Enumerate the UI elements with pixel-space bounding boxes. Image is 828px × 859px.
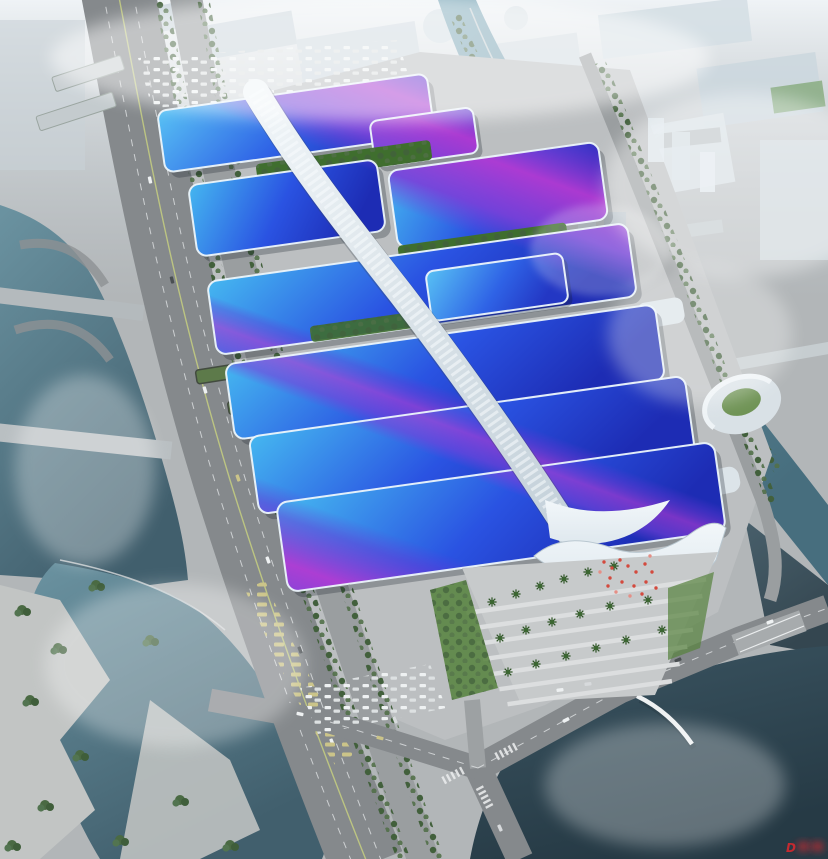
watermark-character [812,842,823,851]
watermark-glyph: D [786,841,796,855]
watermark-character [798,842,809,851]
aerial-rendering: D [0,0,828,859]
plaza-connector-road [472,700,478,768]
screenshot-root: D [0,0,828,859]
